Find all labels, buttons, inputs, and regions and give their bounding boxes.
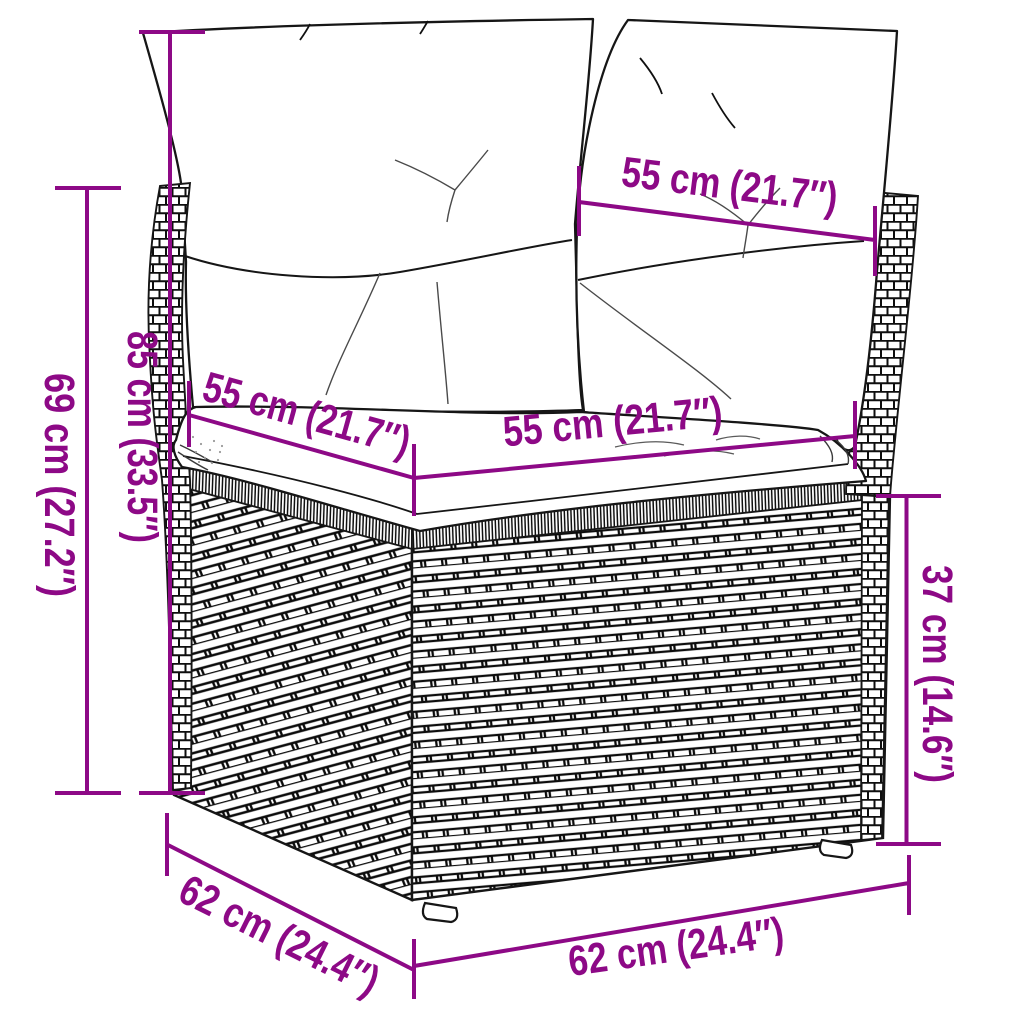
svg-text:85 cm (33.5″): 85 cm (33.5″) (118, 331, 165, 543)
svg-text:37 cm (14.6″): 37 cm (14.6″) (913, 565, 960, 783)
svg-text:69 cm (27.2″): 69 cm (27.2″) (35, 373, 82, 597)
